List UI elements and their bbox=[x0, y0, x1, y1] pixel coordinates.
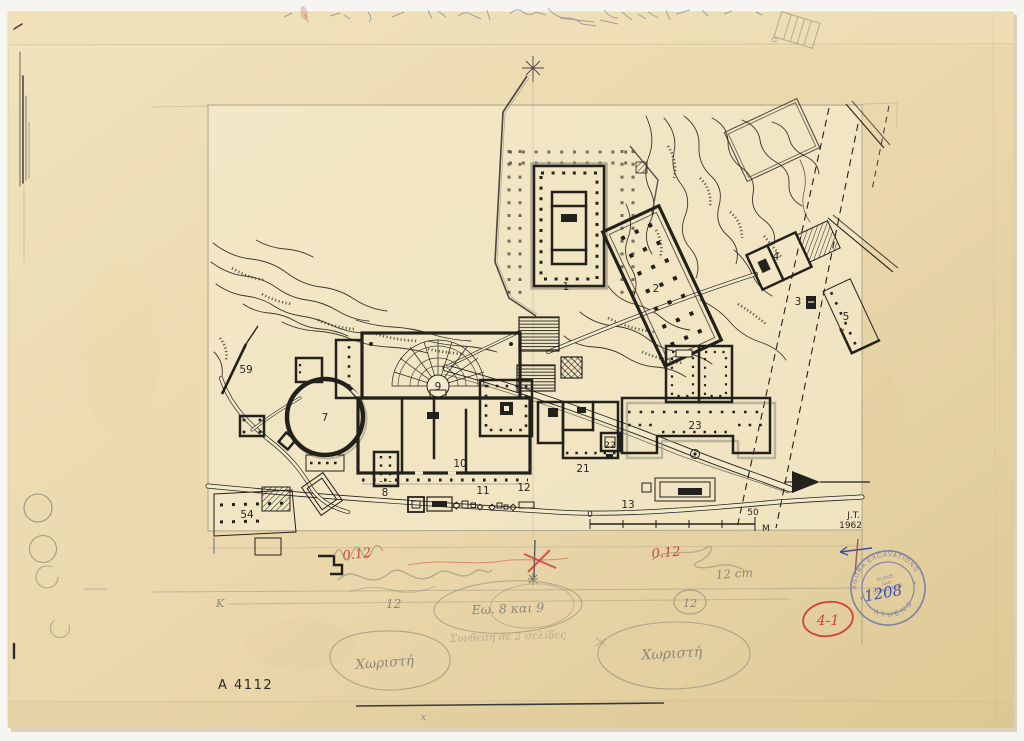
scale-start: 0 bbox=[587, 510, 593, 520]
label-building-7: 7 bbox=[322, 412, 329, 424]
catalog-number: A 4112 bbox=[218, 678, 273, 693]
scale-end: 50 bbox=[747, 508, 759, 518]
label-building-11: 11 bbox=[476, 485, 489, 497]
label-building-12: 12 bbox=[517, 482, 530, 494]
pencil-twelve: 12 bbox=[386, 597, 401, 611]
label-building-23: 23 bbox=[688, 420, 701, 432]
pencil-cm-note: 12 cm bbox=[715, 565, 753, 582]
red-index-value: 4-1 bbox=[816, 613, 840, 629]
paper-top-strip bbox=[8, 12, 1014, 45]
circled-twelve-value: 12 bbox=[683, 597, 697, 610]
k-mark: K bbox=[215, 597, 225, 610]
label-building-10: 10 bbox=[453, 458, 466, 470]
label-building-4: 4 bbox=[773, 251, 780, 263]
label-building-3: 3 bbox=[795, 296, 802, 308]
credit-year: 1962 bbox=[839, 521, 862, 531]
red-dot bbox=[842, 329, 845, 332]
label-building-21: 21 bbox=[576, 463, 589, 475]
label-building-59: 59 bbox=[239, 364, 252, 376]
label-building-2: 2 bbox=[653, 283, 660, 295]
label-building-5: 5 bbox=[843, 311, 850, 323]
label-building-8: 8 bbox=[382, 487, 389, 499]
separate-note-right-text: Χωριστή bbox=[640, 644, 703, 663]
scale-unit: M bbox=[762, 524, 770, 534]
tiny-x-mark: x bbox=[421, 713, 426, 723]
label-building-54: 54 bbox=[240, 509, 254, 521]
building-3-monument bbox=[806, 296, 816, 309]
label-building-9: 9 bbox=[435, 381, 442, 393]
credit-initials: J.T. bbox=[846, 511, 860, 521]
label-building-1: 1 bbox=[563, 281, 570, 293]
scanned-site-plan-sheet: 1 2 3 4 5 7 8 9 10 11 12 13 21 22 23 54 … bbox=[0, 0, 1024, 741]
ellipse-note-text: Εω. 8 και 9 bbox=[470, 600, 544, 618]
label-building-13: 13 bbox=[621, 499, 634, 511]
label-building-22: 22 bbox=[604, 441, 615, 451]
agora-plan-drawing: 1 2 3 4 5 7 8 9 10 11 12 13 21 22 23 54 … bbox=[0, 0, 1024, 741]
